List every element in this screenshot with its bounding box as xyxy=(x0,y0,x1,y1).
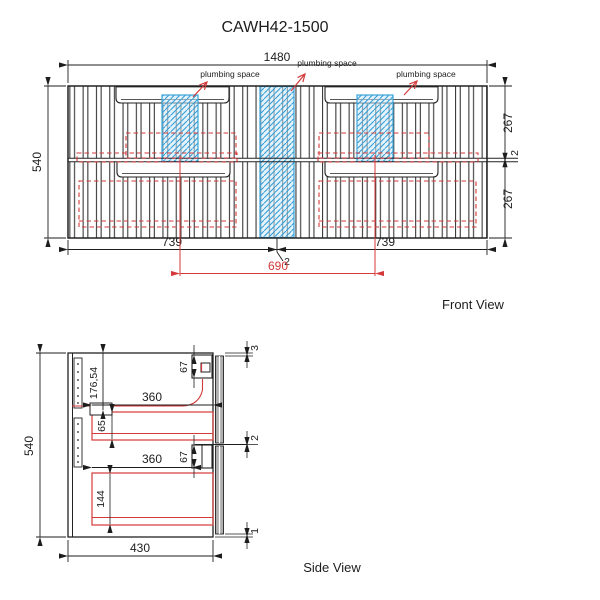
dim-side-total-height: 540 xyxy=(22,353,66,537)
dim-text-739-left: 739 xyxy=(162,235,182,249)
dim-text-267-top: 267 xyxy=(501,113,515,133)
handle-recess-lower-right xyxy=(325,161,438,177)
dim-text-67-upper: 67 xyxy=(178,361,190,373)
dim-side-mid-gap: 2 xyxy=(224,431,261,458)
technical-drawing-svg: CAWH42-1500 xyxy=(0,0,600,600)
front-view-drawing: plumbing space plumbing space plumbing s… xyxy=(30,50,521,312)
side-view-caption: Side View xyxy=(303,560,361,575)
plumbing-space-left xyxy=(162,95,198,162)
dim-text-2-side: 2 xyxy=(249,435,261,441)
front-view-caption: Front View xyxy=(442,297,505,312)
plumbing-space-right xyxy=(357,95,393,162)
dim-text-65: 65 xyxy=(96,420,108,432)
dim-side-top-gap: 3 xyxy=(225,341,261,368)
rail-lower xyxy=(74,418,82,467)
dim-text-540-front: 540 xyxy=(30,152,44,172)
dim-text-267-bottom: 267 xyxy=(501,189,515,209)
dim-text-360-upper: 360 xyxy=(142,390,162,404)
drawing-sheet: CAWH42-1500 xyxy=(0,0,600,600)
side-upper-handle xyxy=(192,355,212,378)
dim-text-1480: 1480 xyxy=(264,50,291,64)
dim-text-3: 3 xyxy=(249,345,261,351)
dim-text-144: 144 xyxy=(95,490,107,508)
side-front-panel xyxy=(216,356,224,534)
dim-front-total-height: 540 xyxy=(30,86,66,238)
dim-text-176-54: 176,54 xyxy=(88,367,100,399)
dim-text-67-lower: 67 xyxy=(178,451,190,463)
page-title: CAWH42-1500 xyxy=(221,19,328,36)
dim-text-1: 1 xyxy=(249,528,261,534)
dim-text-739-right: 739 xyxy=(375,235,395,249)
plumbing-label-center: plumbing space xyxy=(297,58,357,68)
rail-upper xyxy=(74,358,82,408)
dim-text-430: 430 xyxy=(130,541,150,555)
dim-side-total-depth: 430 xyxy=(68,540,213,562)
plumbing-label-left: plumbing space xyxy=(200,69,260,79)
dim-text-540-side: 540 xyxy=(22,436,36,456)
dim-text-690: 690 xyxy=(268,259,288,273)
dim-text-360-lower: 360 xyxy=(142,452,162,466)
dim-text-2-mid: 2 xyxy=(509,150,521,156)
side-view-drawing: 176,54 360 65 67 360 67 xyxy=(22,341,361,575)
plumbing-label-right: plumbing space xyxy=(396,69,456,79)
handle-recess-lower-left xyxy=(117,161,230,177)
